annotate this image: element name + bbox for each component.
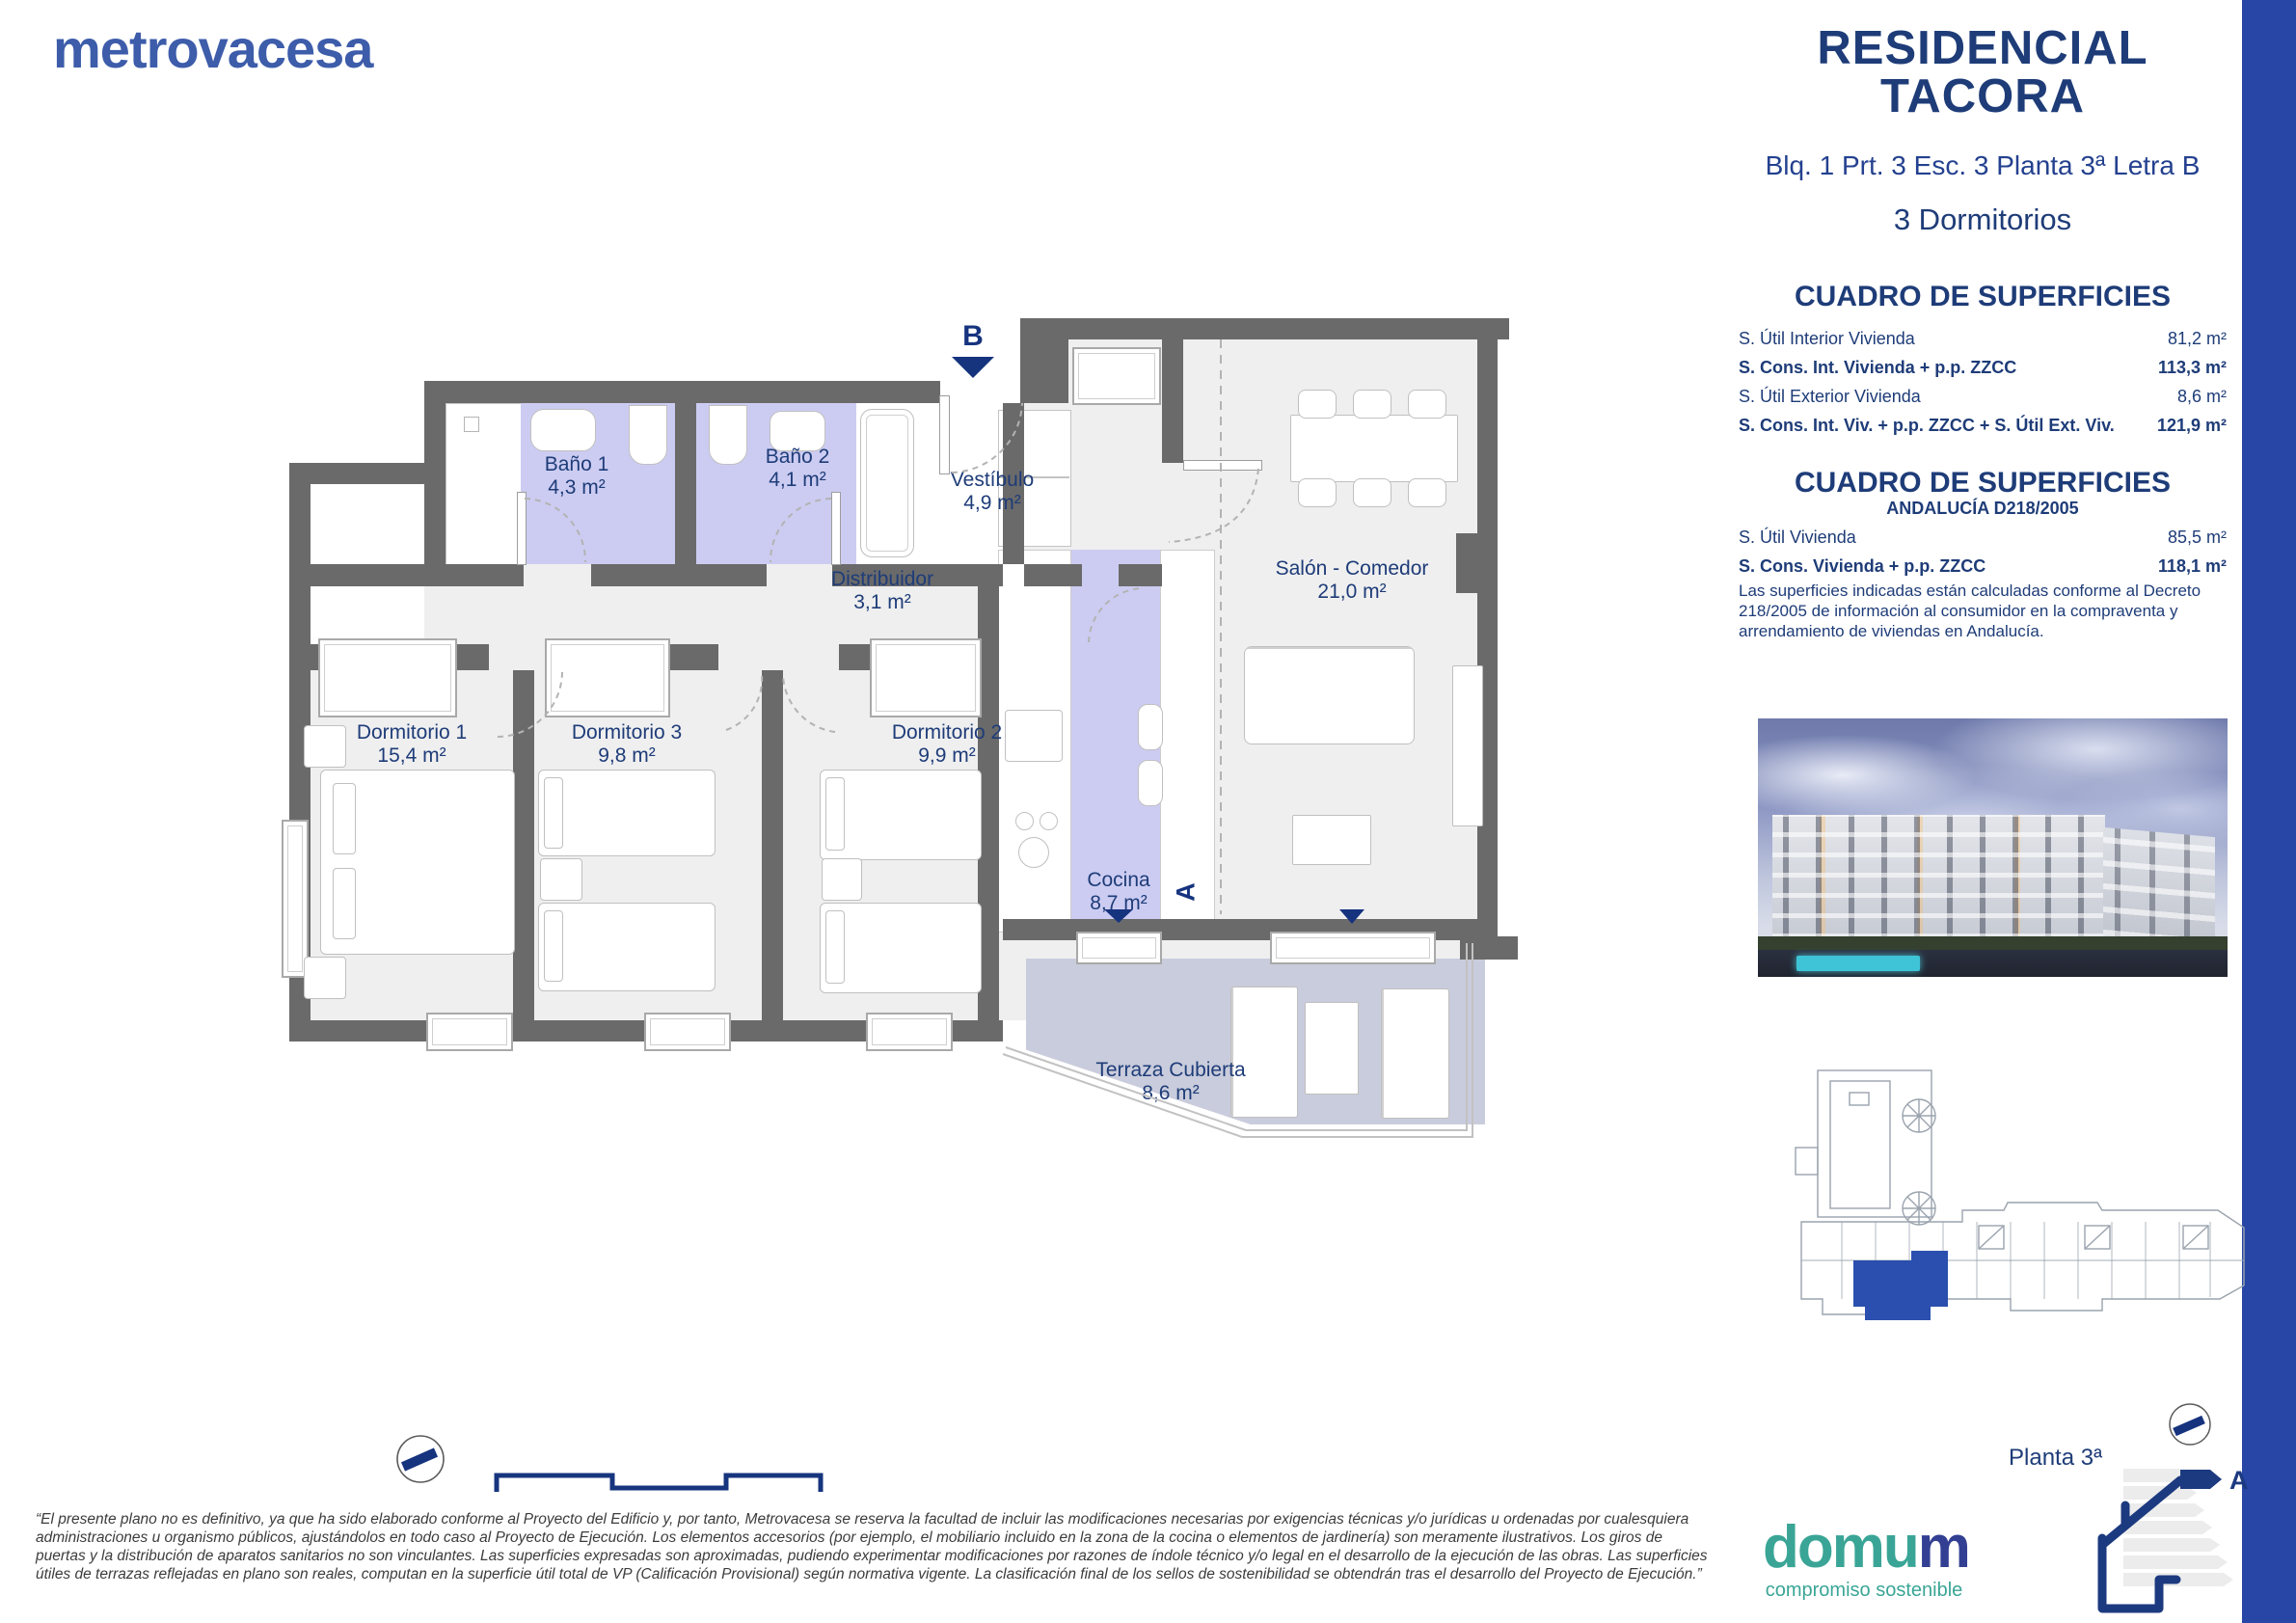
row-value: 81,2 m²	[2168, 329, 2227, 349]
info-column: RESIDENCIAL TACORA Blq. 1 Prt. 3 Esc. 3 …	[1731, 0, 2234, 714]
wall	[675, 403, 696, 564]
row-value: 85,5 m²	[2168, 527, 2227, 548]
highlighted-unit	[1853, 1251, 1948, 1320]
metrovacesa-logo: metrovacesa	[53, 17, 372, 80]
nightstand-icon	[540, 858, 582, 901]
wardrobe	[318, 638, 457, 717]
bathtub-icon	[860, 409, 914, 557]
room-label: Dormitorio 115,4 m²	[357, 721, 467, 768]
wall-pillar	[1456, 533, 1477, 593]
chair-icon	[1298, 478, 1337, 507]
room-label: Terraza Cubierta8,6 m²	[1095, 1059, 1245, 1105]
tv-unit-icon	[1452, 665, 1483, 826]
room-label: Vestíbulo4,9 m²	[951, 469, 1034, 515]
photo-pool	[1796, 956, 1920, 971]
wall	[513, 670, 534, 1020]
window	[1072, 347, 1161, 405]
terrace-table-icon	[1305, 1002, 1359, 1095]
sofa-icon	[1244, 646, 1415, 744]
wardrobe	[545, 638, 670, 717]
site-key-plan	[1765, 1056, 2252, 1355]
table-row: S. Cons. Int. Vivienda + p.p. ZZCC 113,3…	[1739, 358, 2227, 378]
tower-outline	[1818, 1070, 1931, 1217]
terrace-window	[1270, 932, 1436, 964]
door-gap	[524, 564, 591, 586]
floor-plan-sheet: metrovacesa RESIDENCIAL TACORA Blq. 1 Pr…	[0, 0, 2296, 1623]
row-label: S. Cons. Vivienda + p.p. ZZCC	[1739, 556, 1985, 577]
door-leaf	[1183, 460, 1262, 471]
domum-tagline: compromiso sostenible	[1763, 1580, 1965, 1602]
row-label: S. Útil Interior Vivienda	[1739, 329, 1915, 349]
project-title-line2: TACORA	[1731, 69, 2234, 123]
chair-icon	[1408, 478, 1446, 507]
surfaces-table-title: CUADRO DE SUPERFICIES	[1731, 281, 2234, 313]
terrace-door	[1076, 932, 1162, 964]
pillow-icon	[544, 777, 563, 849]
accent-bar	[2242, 0, 2296, 1623]
burner-icon	[1040, 812, 1058, 830]
burner-icon	[1018, 837, 1049, 868]
pillow-icon	[333, 868, 356, 939]
row-label: S. Útil Vivienda	[1739, 527, 1856, 548]
row-value: 121,9 m²	[2157, 416, 2227, 436]
section-arrow-b	[952, 357, 994, 378]
entrance-door-leaf	[939, 395, 950, 474]
room-label: Cocina8,7 m²	[1087, 869, 1149, 915]
wall	[1460, 936, 1518, 960]
window	[866, 1013, 953, 1051]
wall	[1162, 339, 1183, 463]
courtyard	[311, 403, 424, 644]
legal-disclaimer: “El presente plano no es definitivo, ya …	[36, 1510, 1714, 1583]
room-label: Dormitorio 39,8 m²	[572, 721, 682, 768]
chair-icon	[1353, 478, 1391, 507]
closet-room	[446, 403, 523, 566]
room-label: Baño 14,3 m²	[545, 453, 609, 500]
door-gap	[767, 564, 832, 586]
chair-icon	[1408, 390, 1446, 419]
table-row: S. Útil Exterior Vivienda 8,6 m²	[1739, 387, 2227, 407]
nightstand-icon	[304, 957, 346, 999]
chair-icon	[1298, 390, 1337, 419]
window	[282, 820, 309, 978]
section-marker-b: B	[962, 320, 984, 353]
north-compass-icon	[397, 1436, 444, 1482]
chair-icon	[1353, 390, 1391, 419]
wall	[424, 403, 446, 577]
domum-logo: domum compromiso sostenible	[1763, 1518, 1965, 1602]
stool-icon	[1138, 704, 1163, 750]
row-label: S. Útil Exterior Vivienda	[1739, 387, 1921, 407]
row-value: 113,3 m²	[2158, 358, 2227, 378]
wardrobe	[870, 638, 982, 717]
photo-building	[1772, 815, 2105, 938]
surfaces-table2-title: CUADRO DE SUPERFICIES	[1731, 467, 2234, 500]
pillow-icon	[825, 910, 845, 984]
wall	[762, 670, 783, 1020]
burner-icon	[1015, 812, 1034, 830]
wall	[289, 463, 424, 484]
door-leaf	[517, 492, 527, 565]
rating-letter: A	[2229, 1466, 2249, 1495]
row-value: 8,6 m²	[2177, 387, 2227, 407]
room-label: Distribuidor3,1 m²	[831, 568, 933, 614]
scale-bar	[497, 1475, 821, 1492]
surfaces-table2-subtitle: ANDALUCÍA D218/2005	[1731, 499, 2234, 519]
table-row: S. Cons. Vivienda + p.p. ZZCC 118,1 m²	[1739, 556, 2227, 577]
pillow-icon	[333, 783, 356, 854]
energy-rating-icon: A	[2064, 1461, 2256, 1623]
unit-reference: Blq. 1 Prt. 3 Esc. 3 Planta 3ª Letra B	[1731, 150, 2234, 181]
pillow-icon	[544, 910, 563, 982]
domum-wordmark: domum	[1763, 1518, 1965, 1578]
wall	[1119, 564, 1162, 586]
pillow-icon	[825, 777, 845, 851]
stool-icon	[1138, 760, 1163, 806]
table-icon	[1292, 815, 1371, 865]
decree-note: Las superficies indicadas están calculad…	[1739, 581, 2228, 641]
north-compass-icon	[2170, 1404, 2210, 1445]
photo-building-wing	[2103, 827, 2215, 945]
terrace-chair-icon	[1381, 988, 1449, 1119]
window	[426, 1013, 513, 1051]
row-label: S. Cons. Int. Vivienda + p.p. ZZCC	[1739, 358, 2016, 378]
nightstand-icon	[822, 858, 862, 901]
nightstand-icon	[304, 725, 346, 768]
room-label: Salón - Comedor21,0 m²	[1276, 557, 1429, 604]
row-label: S. Cons. Int. Viv. + p.p. ZZCC + S. Útil…	[1739, 416, 2115, 436]
shaft-icon	[464, 417, 479, 432]
table-row: S. Útil Interior Vivienda 81,2 m²	[1739, 329, 2227, 349]
kitchen-sink-icon	[1005, 710, 1063, 762]
window	[644, 1013, 731, 1051]
sink-icon	[530, 409, 596, 451]
toilet-icon	[709, 405, 747, 465]
single-bed-icon	[538, 903, 716, 991]
rating-arrow	[2180, 1470, 2222, 1489]
wall	[1068, 318, 1509, 339]
room-label: Baño 24,1 m²	[766, 446, 830, 492]
dining-table-icon	[1290, 415, 1458, 482]
typology-label: 3 Dormitorios	[1731, 203, 2234, 237]
section-marker-a: A	[1172, 882, 1202, 902]
building-photo	[1758, 718, 2228, 977]
project-title-line1: RESIDENCIAL	[1731, 21, 2234, 75]
wall	[424, 381, 940, 403]
wall	[1024, 564, 1082, 586]
row-value: 118,1 m²	[2158, 556, 2227, 577]
single-bed-icon	[538, 770, 716, 856]
kitchen-counter-right	[1160, 550, 1215, 933]
toilet-icon	[629, 405, 667, 465]
wall	[1477, 318, 1498, 940]
door-leaf	[831, 492, 841, 565]
room-label: Dormitorio 29,9 m²	[892, 721, 1002, 768]
table-row: S. Útil Vivienda 85,5 m²	[1739, 527, 2227, 548]
wall	[1020, 318, 1068, 403]
table-row: S. Cons. Int. Viv. + p.p. ZZCC + S. Útil…	[1739, 416, 2227, 436]
